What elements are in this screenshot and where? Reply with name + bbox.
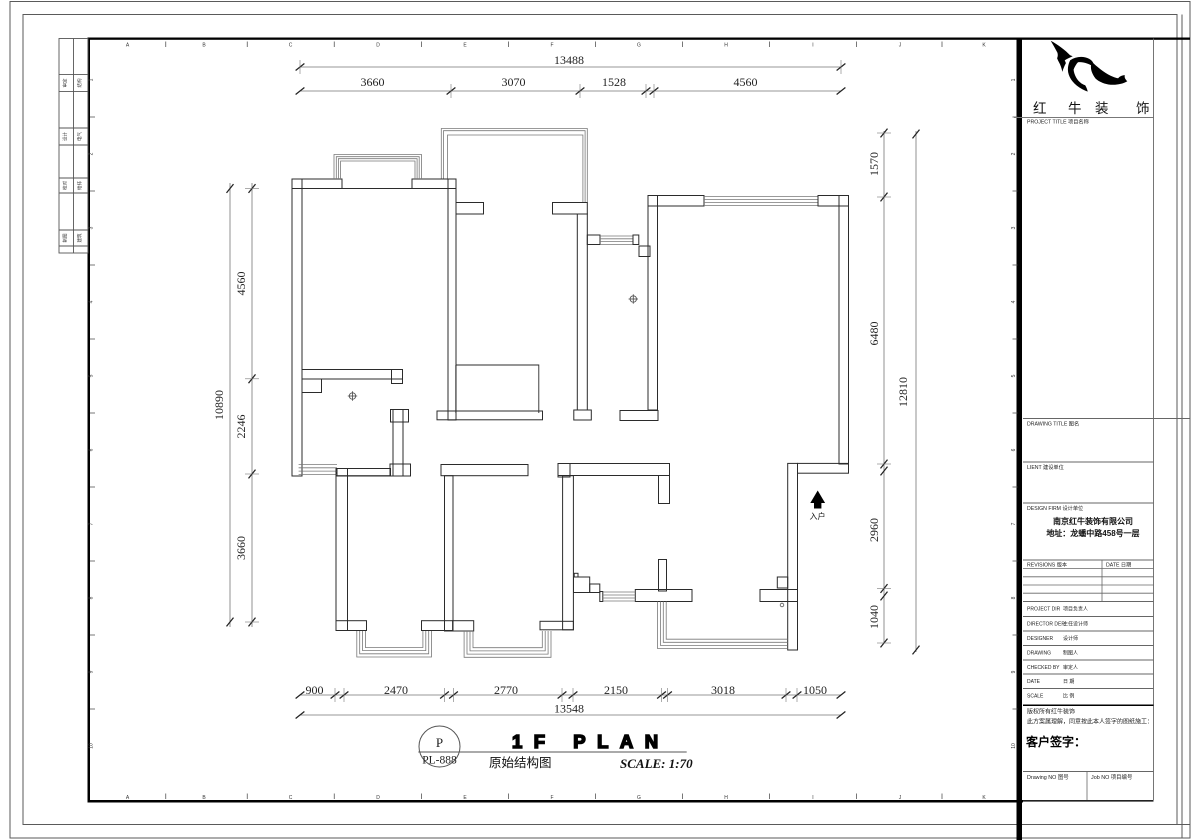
svg-text:3660: 3660	[361, 75, 385, 89]
svg-text:DATE 日期: DATE 日期	[1106, 562, 1131, 569]
svg-text:DRAWING TITLE 图名: DRAWING TITLE 图名	[1027, 420, 1079, 428]
svg-text:10: 10	[89, 743, 95, 749]
svg-text:装: 装	[1095, 101, 1109, 116]
svg-text:D: D	[376, 795, 380, 801]
svg-text:5: 5	[1011, 374, 1017, 377]
svg-text:红: 红	[1033, 101, 1047, 116]
svg-text:8: 8	[1011, 596, 1017, 599]
svg-text:DESIGNER: DESIGNER	[1027, 636, 1054, 642]
svg-text:Drawing NO 图号: Drawing NO 图号	[1027, 773, 1069, 781]
svg-text:电气: 电气	[76, 132, 82, 141]
svg-text:版权所有红牛装饰: 版权所有红牛装饰	[1027, 708, 1075, 716]
svg-text:3: 3	[89, 226, 95, 229]
svg-text:F: F	[550, 43, 553, 49]
svg-text:LIENT 建设单位: LIENT 建设单位	[1027, 463, 1064, 471]
svg-text:4: 4	[1011, 300, 1017, 303]
svg-text:DIRECTOR DER: DIRECTOR DER	[1027, 622, 1065, 628]
svg-text:日 期: 日 期	[1063, 679, 1074, 685]
svg-text:牛: 牛	[1068, 101, 1082, 116]
svg-text:C: C	[289, 795, 293, 801]
svg-text:G: G	[637, 795, 641, 801]
svg-text:1040: 1040	[867, 605, 881, 629]
svg-text:H: H	[724, 43, 728, 49]
svg-text:PROJECT DIR: PROJECT DIR	[1027, 607, 1061, 613]
svg-text:2470: 2470	[384, 683, 408, 697]
svg-text:3: 3	[1011, 226, 1017, 229]
svg-text:F: F	[550, 795, 553, 801]
svg-text:原始结构图: 原始结构图	[489, 755, 552, 770]
svg-text:1F PLAN: 1F PLAN	[512, 731, 670, 752]
svg-text:2960: 2960	[867, 518, 881, 542]
svg-text:7: 7	[89, 522, 95, 525]
svg-text:13488: 13488	[554, 53, 584, 67]
svg-text:H: H	[724, 795, 728, 801]
svg-text:审定: 审定	[62, 78, 69, 87]
svg-text:1: 1	[89, 78, 95, 81]
svg-text:客户签字：: 客户签字：	[1025, 734, 1086, 749]
svg-text:DRAWING: DRAWING	[1027, 651, 1051, 657]
svg-text:设计: 设计	[62, 132, 69, 141]
svg-text:I: I	[812, 43, 813, 49]
svg-text:CHECKED BY: CHECKED BY	[1027, 665, 1060, 671]
svg-text:3070: 3070	[502, 75, 526, 89]
svg-text:P: P	[436, 735, 443, 750]
svg-text:主任设计师: 主任设计师	[1063, 621, 1088, 628]
svg-text:制图人: 制图人	[1063, 650, 1078, 657]
svg-text:REVISIONS 版本: REVISIONS 版本	[1027, 561, 1067, 569]
svg-text:12810: 12810	[896, 377, 910, 407]
svg-text:9: 9	[1011, 670, 1017, 673]
svg-text:G: G	[637, 43, 641, 49]
svg-text:D: D	[376, 43, 380, 49]
svg-text:饰: 饰	[1136, 101, 1150, 116]
svg-text:1: 1	[1011, 78, 1017, 81]
svg-text:地址：龙蟠中路458号一层: 地址：龙蟠中路458号一层	[1046, 528, 1139, 538]
svg-text:1050: 1050	[803, 683, 827, 697]
svg-text:C: C	[289, 43, 293, 49]
svg-text:4: 4	[89, 300, 95, 303]
svg-text:10890: 10890	[212, 390, 226, 420]
svg-text:5: 5	[89, 374, 95, 377]
svg-text:6: 6	[89, 448, 95, 451]
svg-text:3018: 3018	[711, 683, 735, 697]
svg-text:校对: 校对	[62, 181, 69, 190]
svg-text:900: 900	[306, 683, 324, 697]
svg-text:9: 9	[89, 670, 95, 673]
svg-text:8: 8	[89, 596, 95, 599]
svg-text:审定人: 审定人	[1063, 664, 1078, 671]
svg-text:7: 7	[1011, 522, 1017, 525]
svg-text:1570: 1570	[867, 152, 881, 176]
svg-text:6480: 6480	[867, 322, 881, 346]
svg-text:项目负责人: 项目负责人	[1063, 606, 1088, 613]
svg-text:1528: 1528	[602, 75, 626, 89]
svg-text:制图: 制图	[62, 233, 69, 242]
svg-text:比 例: 比 例	[1063, 693, 1074, 700]
svg-text:南京红牛装饰有限公司: 南京红牛装饰有限公司	[1053, 516, 1133, 526]
svg-text:13548: 13548	[554, 702, 584, 716]
svg-text:此方案属理解，同意按此本人签字的图纸施工：: 此方案属理解，同意按此本人签字的图纸施工：	[1027, 718, 1153, 726]
svg-text:SCALE: 1:70: SCALE: 1:70	[620, 756, 693, 771]
svg-text:Job NO 项目编号: Job NO 项目编号	[1091, 773, 1133, 781]
svg-text:SCALE: SCALE	[1027, 694, 1044, 700]
svg-text:3660: 3660	[234, 536, 248, 560]
svg-text:2150: 2150	[604, 683, 628, 697]
svg-text:2770: 2770	[494, 683, 518, 697]
svg-text:2246: 2246	[234, 415, 248, 439]
svg-text:2: 2	[1011, 152, 1017, 155]
svg-text:I: I	[812, 795, 813, 801]
svg-text:6: 6	[1011, 448, 1017, 451]
svg-text:10: 10	[1011, 743, 1017, 749]
svg-text:PROJECT TITLE 项目名称: PROJECT TITLE 项目名称	[1027, 118, 1089, 126]
svg-text:DATE: DATE	[1027, 679, 1041, 685]
svg-text:设计师: 设计师	[1063, 635, 1078, 642]
svg-text:4560: 4560	[234, 272, 248, 296]
svg-text:建筑: 建筑	[76, 233, 83, 242]
svg-text:4560: 4560	[734, 75, 758, 89]
svg-text:DESIGN FIRM 设计单位: DESIGN FIRM 设计单位	[1027, 504, 1083, 512]
svg-text:2: 2	[89, 152, 95, 155]
svg-text:结构: 结构	[76, 78, 83, 87]
svg-text:给排: 给排	[76, 181, 83, 190]
svg-text:入户: 入户	[810, 511, 826, 521]
svg-text:PL-888: PL-888	[422, 755, 457, 767]
